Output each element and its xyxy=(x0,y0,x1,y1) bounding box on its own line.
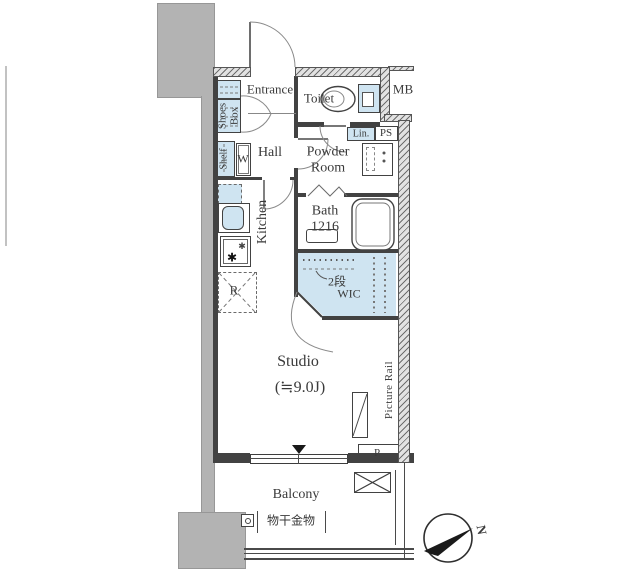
label-pipe: P xyxy=(374,447,380,459)
room-label-wic: WIC xyxy=(337,287,360,300)
shoes-box-line1: Shoes xyxy=(217,103,229,129)
room-label-balcony: Balcony xyxy=(273,487,320,503)
floor-plan: ✱ ✱ xyxy=(0,0,640,569)
label-shelf: Shelf xyxy=(218,148,229,169)
kitchen-sink xyxy=(222,206,244,230)
wall-bottom-left xyxy=(213,453,250,463)
shoes-box-door-arc xyxy=(241,96,271,114)
wall-hall-powder xyxy=(294,168,298,297)
shoes-box-upper-cabinet xyxy=(217,80,241,99)
entrance-door-arc xyxy=(250,22,295,67)
room-label-kitchen: Kitchen xyxy=(255,200,271,244)
balcony-railing xyxy=(244,548,414,550)
wall-hall-kitchen-stub xyxy=(290,177,298,180)
powder-line2: Room xyxy=(311,160,345,175)
entrance-step-line xyxy=(248,113,296,114)
laundry-bracket-icon xyxy=(245,518,251,524)
wall-right xyxy=(398,120,410,463)
label-picture-rail: Picture Rail xyxy=(383,361,395,419)
laundry-hardware-tick-left xyxy=(257,511,258,533)
wall-powder-bath-left xyxy=(294,193,306,197)
sliding-window xyxy=(250,454,348,464)
shoes-box-door-arc xyxy=(241,114,271,132)
wall-toilet-bottom-left xyxy=(298,122,324,127)
powder-line1: Powder xyxy=(307,144,350,159)
bath-line2: 1216 xyxy=(311,219,339,234)
compass-north-needle xyxy=(424,528,473,556)
shoes-box-line2: Box xyxy=(229,107,241,125)
wall-hall-toilet xyxy=(294,76,298,138)
label-studio-size: (≒9.0J) xyxy=(275,379,325,397)
wall-wic-bottom xyxy=(322,316,398,320)
balcony-railing xyxy=(244,553,414,554)
bathtub xyxy=(352,199,394,250)
stove-burner-icon: ✱ xyxy=(238,241,246,251)
bathtub-inner xyxy=(356,203,390,246)
bath-folding-door xyxy=(308,185,347,196)
label-linen: Lin. xyxy=(353,128,369,139)
ac-outdoor-unit xyxy=(354,472,391,493)
room-label-hall: Hall xyxy=(258,145,282,161)
wall-top-entrance xyxy=(213,67,251,77)
washbasin-cabinet xyxy=(366,147,375,171)
label-pipe-space: PS xyxy=(380,127,392,139)
room-label-toilet: Toilet xyxy=(304,92,334,107)
adjacent-unit-line xyxy=(5,66,7,246)
wall-toilet-bottom-right xyxy=(350,122,380,127)
wall-bath-wic xyxy=(294,249,398,253)
kitchen-counter-top xyxy=(218,184,242,204)
bath-line1: Bath xyxy=(312,203,338,218)
balcony-right-edge xyxy=(404,463,405,559)
room-label-entrance: Entrance xyxy=(247,83,293,98)
window-center-marker xyxy=(292,445,306,454)
laundry-hardware-tick-right xyxy=(325,511,326,533)
balcony-divider-line xyxy=(395,470,396,545)
concrete-column-top xyxy=(157,3,215,98)
stove-burner-icon: ✱ xyxy=(227,251,237,264)
wic-floor xyxy=(298,253,396,317)
room-label-powder-room: PowderRoom xyxy=(307,144,350,175)
label-washing-machine: W xyxy=(237,152,248,165)
wall-mb-top xyxy=(388,66,414,71)
label-laundry-hardware: 物干金物 xyxy=(267,514,315,527)
room-label-studio: Studio xyxy=(277,353,319,371)
compass-circle xyxy=(424,514,472,562)
label-meter-box: MB xyxy=(393,83,413,98)
sliding-window-track xyxy=(250,458,348,459)
balcony-railing xyxy=(244,558,414,560)
toilet-tank-lid xyxy=(362,92,374,107)
wall-top-toilet xyxy=(295,67,382,77)
label-shoes-box: ShoesBox xyxy=(217,103,242,129)
concrete-column-bottom xyxy=(178,512,246,569)
compass-north-label: N xyxy=(473,524,489,536)
wall-powder-bath-right xyxy=(344,193,398,197)
sliding-window-meeting-stile xyxy=(298,454,299,464)
room-label-bath: Bath1216 xyxy=(311,203,339,234)
wall-hall-kitchen xyxy=(218,177,262,180)
label-refrigerator: R xyxy=(230,284,239,299)
studio-cabinet xyxy=(352,392,368,438)
